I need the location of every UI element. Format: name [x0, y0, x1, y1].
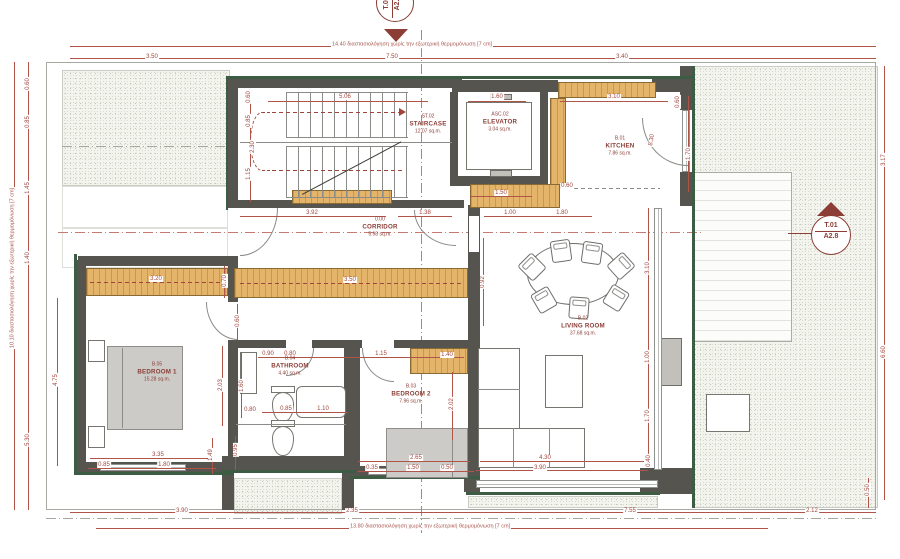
- dim-line: [884, 66, 885, 500]
- bathroom-line: [236, 424, 346, 425]
- section-marker-top: T.02 A2.8: [376, 0, 414, 22]
- room-area: 15.28 sq.m.: [137, 376, 176, 383]
- dim-line: [470, 196, 532, 197]
- elevator-rail: [490, 170, 512, 177]
- dimension-label: 3.10: [607, 94, 621, 100]
- dim-line: [476, 470, 648, 471]
- dimension-label: 3.40: [615, 54, 629, 60]
- dim-line: [88, 468, 216, 469]
- wall: [76, 260, 86, 472]
- dimension-label: 6.60: [881, 345, 887, 359]
- dimension-label: 2.65: [409, 455, 423, 461]
- dimension-label: 0.50: [865, 483, 871, 497]
- dim-line: [70, 58, 876, 59]
- room-name: BATHROOM: [271, 362, 309, 370]
- bedroom2-wardrobe: [410, 348, 468, 374]
- living-east-glazing: [654, 208, 662, 470]
- dimension-label: 3.17: [881, 153, 887, 167]
- kitchen-counter: [550, 98, 566, 188]
- dimension-label: 1.00: [503, 210, 517, 216]
- dimension-label: 0.92: [480, 275, 486, 289]
- dimension-label: 0.60: [235, 314, 241, 328]
- dimension-label: 2.30: [250, 140, 256, 154]
- wall: [452, 80, 558, 92]
- wall: [680, 66, 692, 110]
- marker-leader: [788, 233, 812, 234]
- wall: [236, 340, 286, 348]
- dimension-label: 0.85: [25, 115, 31, 129]
- wall: [312, 340, 354, 348]
- dimension-label: 7.50: [385, 54, 399, 60]
- dimension-label: 0.60: [25, 77, 31, 91]
- wall: [652, 78, 682, 92]
- dimension-label: 1.50: [406, 465, 420, 471]
- wall: [78, 256, 232, 266]
- dim-line: [648, 208, 649, 464]
- dimension-label: 1.50: [494, 190, 508, 196]
- bedroom1-bed: [107, 346, 183, 430]
- dim-line: [358, 461, 470, 462]
- room-label-elevator: ASC.02ELEVATOR3.04 sq.m.: [483, 111, 517, 132]
- room-label-staircase: ST.02STAIRCASE12.07 sq.m.: [409, 113, 446, 134]
- dimension-label: 1.49: [208, 448, 214, 462]
- dimension-label: 4.75: [53, 373, 59, 387]
- dimension-label: 0.85: [97, 462, 111, 468]
- dim-line: [688, 96, 689, 192]
- dim-line: [70, 512, 876, 513]
- plot-setback-line: [46, 518, 878, 519]
- dimension-label: 1.15: [374, 351, 388, 357]
- room-label-bedroom-1: B.05BEDROOM 115.28 sq.m.: [137, 361, 176, 382]
- bathtub: [296, 386, 346, 418]
- dimension-label: 0.60: [675, 95, 681, 109]
- section-marker-label: T.02: [377, 0, 392, 21]
- floor-plan: 3.507.503.4014.40 διαστασιολόγηση χωρίς …: [0, 0, 900, 559]
- dimension-label: 1.70: [686, 147, 692, 161]
- exterior-edge: [466, 492, 660, 495]
- room-label-living-room: B.02LIVING ROOM37.68 sq.m.: [561, 315, 605, 336]
- kitchen-counter-dashed: [560, 188, 660, 189]
- dimension-label: 0.85: [246, 114, 252, 128]
- sofa-line: [513, 428, 514, 468]
- room-label-bedroom-2: B.03BEDROOM 27.96 sq.m.: [391, 383, 430, 404]
- room-name: ELEVATOR: [483, 118, 517, 126]
- terrace-edge: [692, 66, 695, 508]
- wall: [352, 348, 360, 474]
- stair-flight: [286, 146, 408, 198]
- wall: [222, 470, 234, 510]
- exterior-edge: [222, 470, 356, 473]
- section-marker-t01: T.01 A2.8: [811, 215, 851, 255]
- dim-line: [90, 458, 212, 459]
- stair-path: [272, 112, 402, 113]
- dimension-label: 0.85: [279, 406, 293, 412]
- wardrobe-centerline: [240, 283, 464, 284]
- dimension-label: 0.50: [440, 465, 454, 471]
- dim-line: [480, 461, 644, 462]
- dimension-label: 1.80: [555, 210, 569, 216]
- dim-line: [560, 101, 668, 102]
- wall: [540, 92, 548, 184]
- dimension-label: 1.45: [25, 181, 31, 195]
- dim-line: [358, 471, 474, 472]
- wall: [680, 172, 692, 206]
- exterior-edge: [74, 254, 77, 474]
- dimension-label: 0.80: [243, 407, 257, 413]
- room-name: STAIRCASE: [409, 120, 446, 128]
- dimension-label: 3.35: [151, 452, 165, 458]
- room-label-kitchen: B.01KITCHEN7.86 sq.m.: [606, 135, 635, 156]
- section-marker-sheet: A2.8: [392, 0, 404, 18]
- dimension-label: 2.12: [805, 508, 819, 514]
- dimension-label: 1.60: [239, 379, 245, 393]
- dimension-label: 0.70: [222, 274, 228, 288]
- dimension-label: 2.02: [449, 397, 455, 411]
- dimension-label: 1.00: [645, 350, 651, 364]
- dining-chair: [550, 239, 573, 264]
- dimension-label: 0.95: [233, 443, 239, 457]
- dimension-label: 14.40 διαστασιολόγηση χωρίς την εξωτερικ…: [331, 42, 493, 48]
- section-marker-sheet: A2.8: [815, 231, 847, 243]
- room-name: BEDROOM 2: [391, 390, 430, 398]
- room-label-corridor: 0.00CORRIDOR5.98 sq.m.: [362, 216, 397, 237]
- dim-line: [262, 412, 348, 413]
- dimension-label: 1.40: [25, 251, 31, 265]
- exterior-edge: [74, 472, 234, 475]
- dining-chair: [581, 241, 604, 266]
- room-name: KITCHEN: [606, 142, 635, 150]
- exterior-edge: [228, 76, 694, 79]
- dimension-label: 0.60: [246, 90, 252, 104]
- dimension-label: 5.06: [338, 94, 352, 100]
- dimension-label: 3.50: [343, 277, 357, 283]
- wall: [352, 340, 362, 348]
- nightstand: [88, 426, 105, 448]
- wall: [450, 92, 458, 184]
- door-opening: [469, 216, 479, 252]
- dimension-label: 13.80 διαστασιολόγηση χωρίς την εξωτερικ…: [349, 524, 511, 530]
- dimension-label: 1.80: [157, 462, 171, 468]
- dim-line: [268, 101, 428, 102]
- stair-direction-arrow-icon: [399, 108, 406, 116]
- dimension-label: 2.35: [345, 508, 359, 514]
- dimension-label: 0.35: [365, 465, 379, 471]
- room-area: 4.40 sq.m.: [271, 370, 309, 377]
- room-name: BEDROOM 1: [137, 368, 176, 376]
- room-area: 5.98 sq.m.: [362, 231, 397, 238]
- wall: [228, 78, 462, 88]
- dimension-label: 10.10 διαστασιολόγηση χωρίς την εξωτερικ…: [10, 187, 16, 349]
- bed-line: [122, 348, 123, 428]
- room-area: 12.07 sq.m.: [409, 128, 446, 135]
- dimension-label: 2.03: [218, 378, 224, 392]
- dimension-label: 3.50: [145, 54, 159, 60]
- dimension-label: 1.60: [490, 94, 504, 100]
- dimension-label: 0.40: [646, 454, 652, 468]
- coffee-table: [545, 355, 583, 408]
- sofa-line: [549, 428, 550, 468]
- dimension-label: 1.38: [418, 210, 432, 216]
- room-name: CORRIDOR: [362, 223, 397, 231]
- dimension-label: 0.60: [560, 183, 574, 189]
- section-arrow-icon: [384, 29, 408, 42]
- nightstand: [88, 340, 105, 362]
- sofa: [478, 428, 585, 468]
- dimension-label: 1.70: [645, 409, 651, 423]
- room-area: 7.86 sq.m.: [606, 150, 635, 157]
- dimension-label: 1.15: [246, 167, 252, 181]
- dimension-label: 4.30: [538, 455, 552, 461]
- dimension-label: 3.92: [305, 210, 319, 216]
- section-arrow-icon: [817, 202, 845, 216]
- wall: [394, 340, 478, 348]
- dimension-label: 3.20: [149, 276, 163, 282]
- exterior-edge: [226, 76, 228, 210]
- dim-line: [468, 101, 526, 102]
- dimension-label: 1.10: [316, 406, 330, 412]
- dimension-label: 3.90: [175, 508, 189, 514]
- room-name: LIVING ROOM: [561, 322, 605, 330]
- dimension-label: 5.30: [25, 433, 31, 447]
- setback-line: [62, 146, 230, 147]
- sofa-line: [478, 389, 520, 390]
- living-sliding-door: [476, 480, 658, 488]
- dim-line: [398, 216, 452, 217]
- wall: [222, 456, 354, 470]
- dim-line: [484, 216, 592, 217]
- room-area: 3.04 sq.m.: [483, 126, 517, 133]
- dimension-label: 1.40: [440, 352, 454, 358]
- room-label-bathroom: B.04BATHROOM4.40 sq.m.: [271, 355, 309, 376]
- room-area: 37.68 sq.m.: [561, 330, 605, 337]
- dimension-label: 3.90: [533, 465, 547, 471]
- stair-path: [272, 170, 402, 171]
- wardrobe-centerline: [90, 282, 226, 283]
- dimension-label: 3.10: [645, 261, 651, 275]
- dimension-label: 7.55: [623, 508, 637, 514]
- room-area: 7.96 sq.m.: [391, 398, 430, 405]
- wall: [228, 88, 238, 208]
- section-marker-label: T.01: [812, 216, 850, 231]
